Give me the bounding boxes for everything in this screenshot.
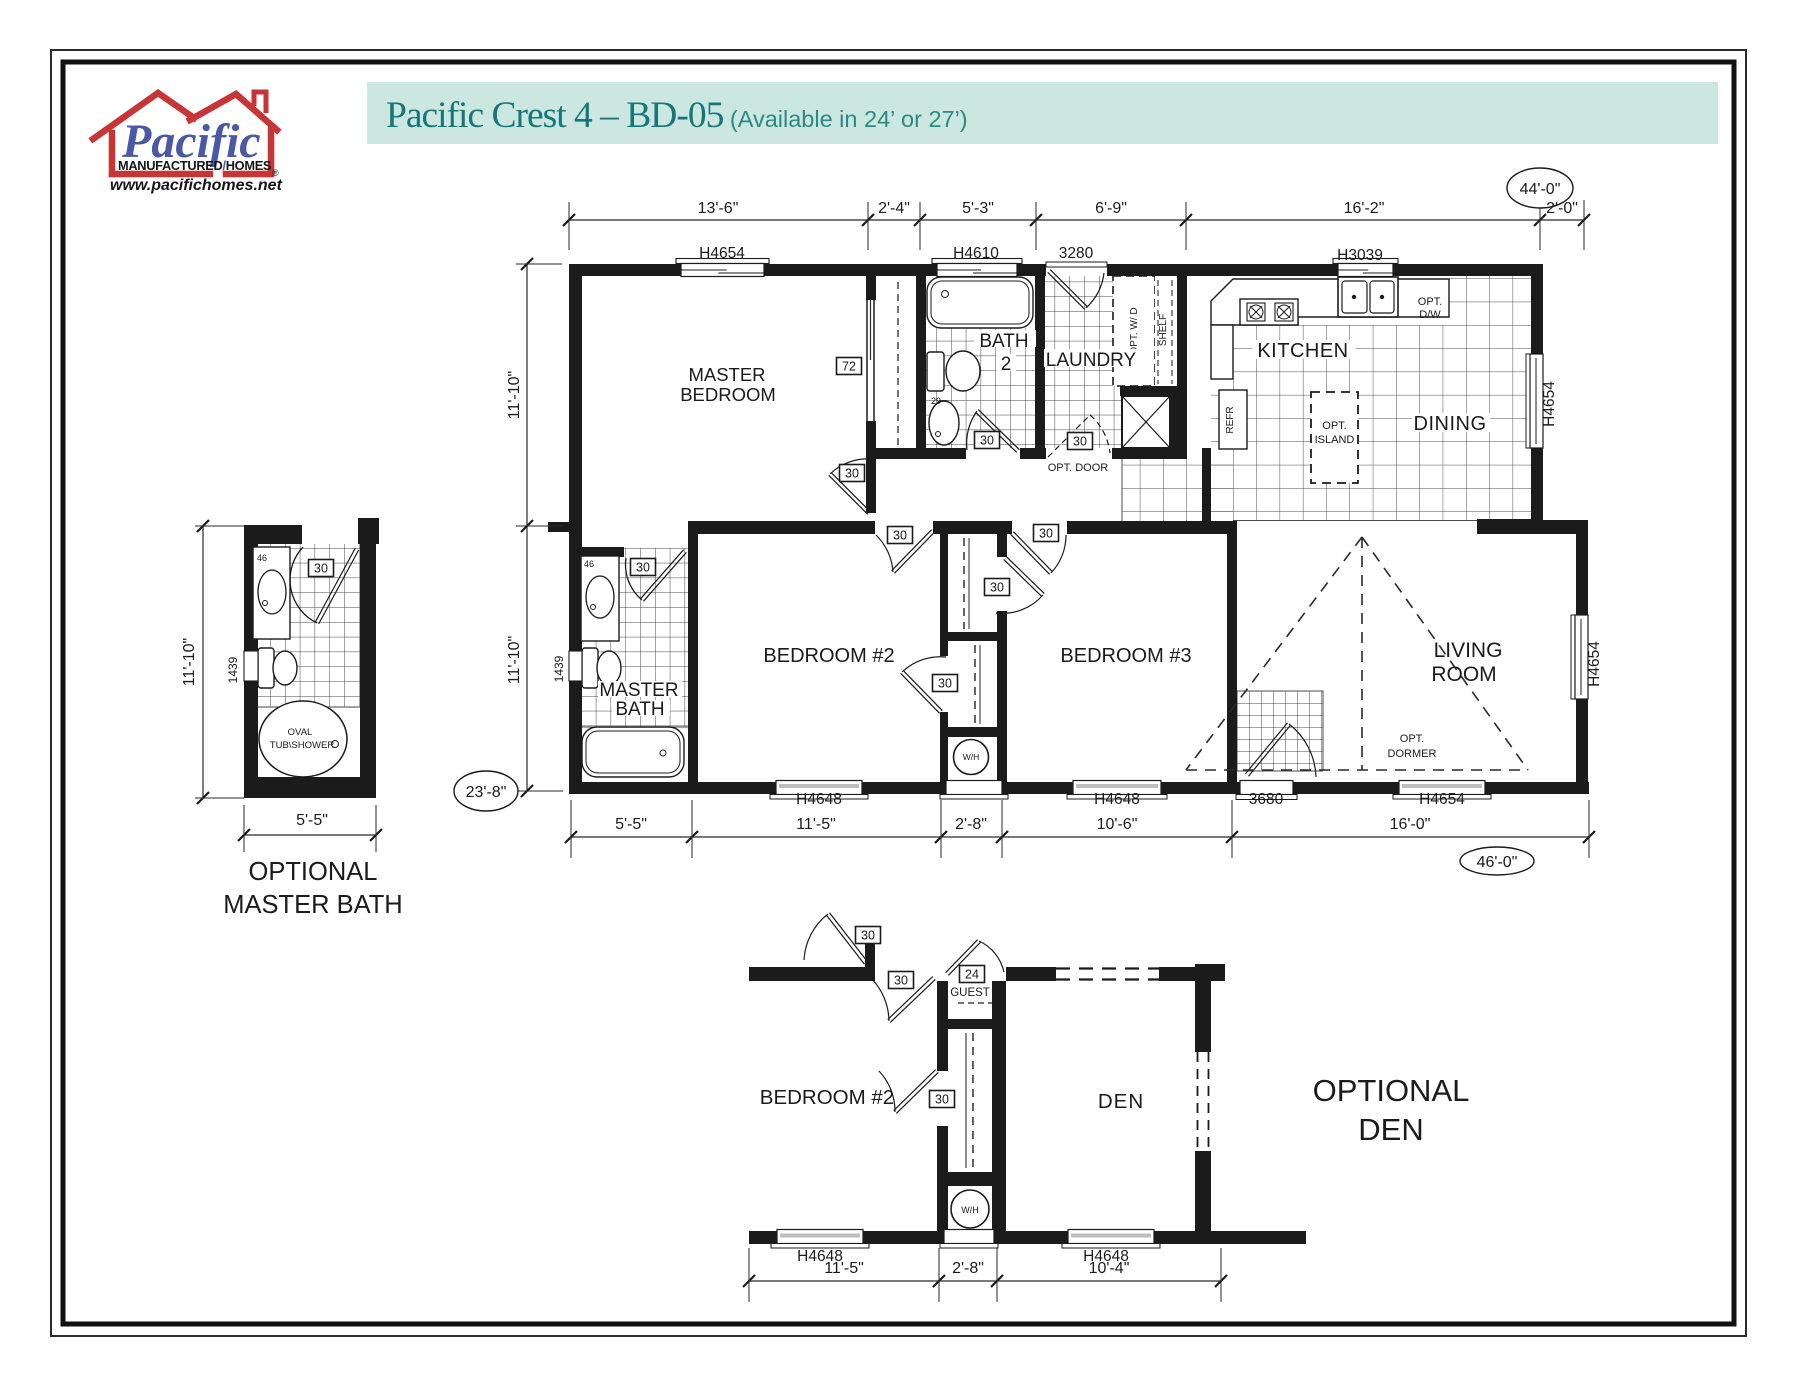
svg-text:H3039: H3039	[1337, 247, 1383, 264]
svg-text:30: 30	[980, 434, 994, 448]
svg-text:OPT. DOOR: OPT. DOOR	[1048, 462, 1109, 474]
svg-text:1439: 1439	[552, 655, 566, 682]
svg-text:TUB\SHOWER: TUB\SHOWER	[270, 740, 335, 751]
svg-text:H4654: H4654	[1586, 641, 1603, 687]
svg-text:H4610: H4610	[953, 245, 999, 262]
svg-text:OPTIONAL: OPTIONAL	[249, 858, 378, 886]
svg-text:11'-10": 11'-10"	[506, 371, 523, 419]
svg-text:W/H: W/H	[963, 752, 980, 762]
svg-text:11'-5": 11'-5"	[824, 1260, 864, 1277]
svg-text:OPT.: OPT.	[1400, 733, 1424, 745]
svg-text:www.pacifichomes.net: www.pacifichomes.net	[110, 177, 283, 194]
svg-text:11'-10": 11'-10"	[181, 638, 198, 686]
svg-text:MANUFACTURED/HOMES: MANUFACTURED/HOMES	[118, 158, 272, 173]
svg-text:30: 30	[1073, 435, 1087, 449]
svg-text:1439: 1439	[226, 656, 240, 683]
svg-text:MASTER: MASTER	[688, 364, 765, 385]
svg-text:5'-5": 5'-5"	[296, 812, 328, 829]
svg-text:OVAL: OVAL	[288, 727, 313, 738]
svg-text:46: 46	[257, 553, 267, 563]
svg-text:30: 30	[314, 562, 328, 576]
svg-text:SHELF: SHELF	[1158, 314, 1169, 346]
svg-text:LAUNDRY: LAUNDRY	[1046, 350, 1137, 371]
svg-text:H4654: H4654	[699, 245, 745, 262]
svg-text:30: 30	[861, 929, 875, 943]
svg-text:ROOM: ROOM	[1431, 663, 1496, 686]
svg-text:5'-3": 5'-3"	[962, 200, 994, 217]
svg-text:30: 30	[636, 561, 650, 575]
svg-text:H4654: H4654	[1541, 381, 1558, 427]
svg-text:11'-10": 11'-10"	[506, 636, 523, 684]
svg-text:DEN: DEN	[1358, 1112, 1423, 1147]
svg-text:LIVING: LIVING	[1434, 639, 1503, 662]
svg-text:24: 24	[965, 968, 979, 982]
svg-text:H4648: H4648	[796, 791, 842, 808]
svg-text:BEDROOM #2: BEDROOM #2	[763, 645, 894, 667]
svg-text:BEDROOM #3: BEDROOM #3	[1060, 645, 1191, 667]
svg-text:W/H: W/H	[961, 1205, 979, 1215]
svg-text:GUEST: GUEST	[950, 987, 990, 999]
svg-text:6'-9": 6'-9"	[1095, 200, 1127, 217]
svg-text:44'-0": 44'-0"	[1520, 181, 1561, 198]
svg-text:30: 30	[893, 529, 907, 543]
svg-text:2'-8": 2'-8"	[955, 816, 987, 833]
svg-text:OPT. W/ D: OPT. W/ D	[1129, 307, 1140, 354]
svg-text:D/W: D/W	[1419, 309, 1441, 321]
svg-text:ISLAND: ISLAND	[1315, 434, 1355, 446]
svg-text:16'-0": 16'-0"	[1390, 816, 1431, 833]
svg-text:3680: 3680	[1249, 791, 1284, 808]
svg-text:3280: 3280	[1059, 245, 1094, 262]
svg-text:30: 30	[938, 677, 952, 691]
svg-text:BATH: BATH	[979, 331, 1028, 352]
svg-text:REFR: REFR	[1225, 406, 1236, 433]
svg-text:30: 30	[845, 467, 859, 481]
svg-text:BEDROOM: BEDROOM	[680, 384, 776, 405]
svg-text:MASTER BATH: MASTER BATH	[223, 891, 402, 919]
svg-text:5'-5": 5'-5"	[615, 816, 647, 833]
svg-text:23'-8": 23'-8"	[466, 784, 507, 801]
svg-text:2'-0": 2'-0"	[1546, 200, 1578, 217]
svg-text:46'-0": 46'-0"	[1477, 854, 1518, 871]
svg-text:29: 29	[931, 396, 941, 406]
svg-text:72: 72	[842, 360, 856, 374]
svg-text:OPT.: OPT.	[1418, 296, 1442, 308]
svg-text:H4654: H4654	[1419, 791, 1465, 808]
svg-text:46: 46	[584, 559, 594, 569]
svg-text:30: 30	[1039, 527, 1053, 541]
svg-text:30: 30	[990, 581, 1004, 595]
svg-text:BEDROOM #2: BEDROOM #2	[760, 1086, 894, 1109]
svg-text:DINING: DINING	[1414, 413, 1487, 435]
svg-text:13'-6": 13'-6"	[698, 200, 739, 217]
svg-text:OPTIONAL: OPTIONAL	[1313, 1073, 1470, 1108]
svg-text:30: 30	[935, 1093, 949, 1107]
svg-text:MASTER: MASTER	[599, 680, 678, 701]
svg-text:11'-5": 11'-5"	[796, 816, 836, 833]
svg-text:OPT.: OPT.	[1322, 420, 1346, 432]
svg-text:10'-4": 10'-4"	[1089, 1260, 1130, 1277]
svg-text:16'-2": 16'-2"	[1344, 200, 1385, 217]
svg-text:30: 30	[894, 974, 908, 988]
svg-text:DEN: DEN	[1098, 1090, 1144, 1113]
svg-text:DORMER: DORMER	[1388, 748, 1437, 760]
svg-text:10'-6": 10'-6"	[1097, 816, 1138, 833]
svg-text:2: 2	[1001, 354, 1012, 375]
svg-text:2'-4": 2'-4"	[878, 200, 910, 217]
svg-text:BATH: BATH	[615, 699, 664, 720]
svg-text:KITCHEN: KITCHEN	[1257, 340, 1348, 362]
svg-text:2'-8": 2'-8"	[952, 1260, 984, 1277]
svg-text:H4648: H4648	[1094, 791, 1140, 808]
